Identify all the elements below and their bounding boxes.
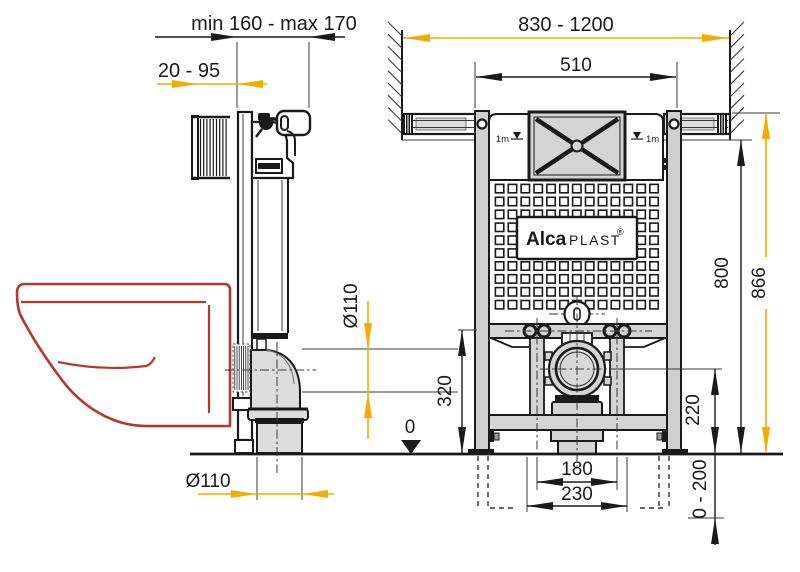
grid-square	[650, 288, 658, 296]
dim-outlet-diameter-label: Ø110	[185, 471, 230, 492]
floor-datum-triangle-icon	[401, 440, 421, 454]
brand-logo-registered: ®	[617, 227, 624, 237]
grid-square	[637, 249, 645, 257]
flush-button	[281, 116, 288, 130]
grid-square	[637, 275, 645, 283]
cistern-top-panel-left	[489, 114, 529, 180]
bottom-crossbar	[489, 415, 667, 430]
grid-square	[624, 262, 632, 270]
grid-square	[508, 197, 516, 205]
grid-square	[495, 210, 503, 218]
dim-frame-width-label: 510	[560, 55, 592, 76]
grid-square	[624, 301, 632, 309]
wall-hatch-stroke	[388, 95, 402, 109]
grid-square	[573, 197, 581, 205]
wall-left	[388, 22, 402, 140]
grid-square	[521, 301, 529, 309]
post-right-bolt-hole	[670, 120, 679, 129]
grid-square	[534, 262, 542, 270]
wall-right-hatching	[730, 22, 744, 134]
grid-square	[508, 262, 516, 270]
wall-hatch-stroke	[388, 120, 402, 134]
level-mark-left-label: 1m	[496, 134, 509, 145]
grid-square	[547, 275, 555, 283]
side-view	[17, 111, 316, 473]
grid-square	[547, 262, 555, 270]
grid-square	[495, 236, 503, 244]
dim-bolt-spacing-arrow-right	[591, 478, 617, 486]
cistern-top-panel-right	[625, 114, 663, 180]
post-left-bolt-hole	[478, 120, 487, 129]
grid-square	[637, 288, 645, 296]
leg-adjuster-right	[662, 431, 667, 442]
dim-leg-adjust-label: 0 - 200	[690, 459, 711, 518]
grid-square	[495, 262, 503, 270]
leg-adjuster-left	[489, 431, 494, 442]
grid-square	[637, 184, 645, 192]
dim-outlet-offset-label: 230	[561, 484, 593, 505]
outlet-socket	[257, 423, 302, 453]
wall-hatch-stroke	[730, 107, 744, 121]
brand-logo-plast: PLAST	[569, 232, 621, 248]
grid-square	[508, 223, 516, 231]
dim-inlet-arrow-top	[458, 330, 466, 356]
cistern-valve-bar	[258, 163, 280, 169]
grid-square	[585, 197, 593, 205]
grid-square	[534, 197, 542, 205]
dim-inlet-height-label: 320	[435, 375, 456, 407]
grid-square	[508, 301, 516, 309]
grid-square	[585, 288, 593, 296]
toilet-bowl-body	[17, 284, 230, 426]
grid-square	[547, 197, 555, 205]
wall-hatch-stroke	[730, 83, 744, 97]
wall-left-hatching	[388, 22, 402, 134]
dim-frame-height-arrow-bottom	[737, 427, 745, 453]
grid-square	[611, 288, 619, 296]
actuator-knob	[259, 116, 273, 130]
dim-outlet-arrow-left	[231, 490, 257, 498]
grid-square	[637, 210, 645, 218]
grid-square	[624, 184, 632, 192]
dim-install-width: 830 - 1200	[403, 14, 729, 42]
grid-square	[637, 301, 645, 309]
dim-pipe-diameter-label: Ø110	[341, 283, 362, 328]
wall-hatch-stroke	[388, 107, 402, 121]
grid-square	[560, 197, 568, 205]
ribs-end-cap	[192, 116, 198, 179]
grid-square	[637, 223, 645, 231]
grid-square	[585, 262, 593, 270]
grid-square	[534, 301, 542, 309]
cistern-bottom-band	[252, 333, 288, 339]
grid-square	[495, 275, 503, 283]
wall-hatch-stroke	[388, 22, 402, 36]
installation-diagram: 1m 1m Alca PLAST ®	[0, 0, 800, 572]
dim-frame-height: 800	[712, 140, 745, 453]
grid-square	[495, 288, 503, 296]
grid-square	[573, 275, 581, 283]
drain-elbow	[251, 350, 300, 409]
grid-square	[534, 275, 542, 283]
dim-total-height-arrow-top	[762, 113, 770, 139]
grid-square	[508, 210, 516, 218]
wall-hatch-stroke	[730, 95, 744, 109]
grid-square	[624, 197, 632, 205]
wall-right	[730, 22, 744, 140]
wall-hatch-stroke	[388, 59, 402, 73]
grid-square	[560, 288, 568, 296]
grid-square	[573, 262, 581, 270]
support-rail-left	[403, 114, 476, 134]
rail-left-slider	[416, 118, 466, 130]
wall-hatch-stroke	[388, 34, 402, 48]
wall-hatch-stroke	[730, 34, 744, 48]
frame-post-right	[667, 111, 681, 453]
dim-outlet-offset-arrow-right	[601, 502, 627, 510]
grid-square	[650, 262, 658, 270]
dim-frame-width-arrow-left	[476, 73, 502, 81]
grid-square	[534, 184, 542, 192]
toilet-bowl-outline	[17, 284, 230, 426]
dim-total-height-label: 866	[749, 267, 770, 299]
grid-square	[650, 301, 658, 309]
grid-square	[508, 249, 516, 257]
grid-square	[573, 288, 581, 296]
grid-square	[650, 236, 658, 244]
bar-wing-right	[624, 338, 665, 347]
wall-hatch-stroke	[730, 22, 744, 36]
dim-total-height: 866	[749, 113, 775, 453]
grid-square	[611, 197, 619, 205]
grid-square	[547, 301, 555, 309]
grid-square	[650, 210, 658, 218]
grid-square	[547, 288, 555, 296]
dim-frame-width-arrow-right	[650, 73, 676, 81]
wall-hatch-stroke	[388, 83, 402, 97]
wall-hatch-stroke	[388, 71, 402, 85]
floor-datum-marker: 0	[401, 417, 421, 454]
leg-adjuster-left-bolt	[494, 433, 499, 440]
grid-square	[521, 288, 529, 296]
grid-square	[521, 197, 529, 205]
grid-square	[495, 249, 503, 257]
grid-square	[650, 223, 658, 231]
grid-square	[560, 262, 568, 270]
dim-leg-adjust-arrow	[711, 518, 719, 544]
cistern-side-body	[252, 122, 293, 350]
grid-square	[547, 184, 555, 192]
grid-square	[495, 197, 503, 205]
grid-square	[637, 197, 645, 205]
grid-square	[521, 184, 529, 192]
dim-install-width-label: 830 - 1200	[518, 14, 614, 36]
dim-wall-distance: 20 - 95	[157, 60, 267, 88]
grid-square	[624, 288, 632, 296]
grid-square	[650, 249, 658, 257]
grid-square	[598, 262, 606, 270]
grid-square	[495, 184, 503, 192]
grid-square	[637, 236, 645, 244]
dim-inlet-arrow-bottom	[458, 427, 466, 453]
wall-hatch-stroke	[388, 46, 402, 60]
grid-square	[585, 275, 593, 283]
bar-wing-left	[491, 338, 530, 347]
frame-post-left	[475, 111, 489, 453]
grid-square	[650, 184, 658, 192]
dim-outlet-height-arrow-top	[711, 369, 719, 395]
wall-hatch-stroke	[730, 71, 744, 85]
grid-square	[573, 184, 581, 192]
grid-square	[598, 184, 606, 192]
grid-square	[598, 275, 606, 283]
grid-square	[508, 275, 516, 283]
grid-square	[495, 223, 503, 231]
dim-outlet-diameter: Ø110	[185, 457, 334, 500]
drain-ear-3	[604, 352, 611, 360]
floor-datum-label: 0	[405, 417, 416, 438]
grid-square	[624, 275, 632, 283]
frame-plate-foot	[235, 440, 253, 453]
grid-square	[637, 262, 645, 270]
grid-square	[611, 275, 619, 283]
dim-outlet-height-label: 220	[683, 394, 704, 426]
dim-pipe-arrow-top	[364, 323, 372, 349]
dim-pipe-diameter: Ø110	[302, 283, 458, 439]
dim-outlet-height-arrow-bottom	[711, 427, 719, 453]
grid-square	[508, 288, 516, 296]
grid-square	[521, 262, 529, 270]
brand-logo-alca: Alca	[526, 229, 567, 250]
cistern-ribs	[201, 119, 227, 176]
wall-hatch-stroke	[730, 46, 744, 60]
dim-bolt-spacing-label: 180	[561, 459, 593, 480]
dim-bolt-spacing-arrow-left	[537, 478, 563, 486]
dim-pipe-arrow-bottom	[364, 392, 372, 418]
technical-drawing-canvas: 1m 1m Alca PLAST ®	[0, 0, 800, 572]
grid-square	[508, 236, 516, 244]
dim-install-width-arrow-left	[404, 34, 430, 42]
dim-frame-height-label: 800	[712, 257, 733, 289]
grid-square	[560, 275, 568, 283]
grid-square	[534, 288, 542, 296]
wall-hatch-stroke	[730, 59, 744, 73]
wall-hatch-stroke	[730, 120, 744, 134]
grid-square	[650, 275, 658, 283]
grid-square	[598, 197, 606, 205]
dim-frame-height-arrow-top	[737, 140, 745, 166]
grid-square	[508, 184, 516, 192]
leg-adjuster-right-bolt	[657, 433, 662, 440]
inspection-center-hole	[572, 141, 583, 152]
frame-bottom	[468, 415, 688, 455]
grid-square	[611, 262, 619, 270]
dim-leg-adjust: 0 - 200	[688, 453, 724, 545]
dim-depth-range-label: min 160 - max 170	[191, 13, 357, 35]
toilet-seat-line	[58, 357, 155, 368]
level-mark-right-label: 1m	[646, 134, 659, 145]
grid-square	[611, 301, 619, 309]
flush-pipe-stub	[257, 339, 266, 350]
grid-square	[495, 301, 503, 309]
dim-wall-distance-label: 20 - 95	[158, 60, 220, 82]
grid-square	[598, 301, 606, 309]
grid-square	[650, 197, 658, 205]
protection-grid-plate: Alca PLAST ®	[495, 184, 658, 309]
grid-square	[598, 288, 606, 296]
dim-outlet-arrow-right	[302, 490, 328, 498]
dim-total-height-arrow-bottom	[762, 427, 770, 453]
coupling-threads	[235, 346, 248, 390]
dim-outlet-offset-arrow-left	[527, 502, 553, 510]
dim-frame-width: 510	[475, 55, 677, 108]
grid-square	[560, 184, 568, 192]
dim-install-width-arrow-right	[702, 34, 728, 42]
grid-square	[611, 184, 619, 192]
cistern-side-ribs-block	[192, 116, 230, 179]
cistern-top: 1m 1m	[489, 112, 663, 180]
dim-wall-distance-arrow-right	[237, 80, 263, 88]
grid-square	[585, 184, 593, 192]
drain-ear-4	[604, 377, 611, 385]
grid-square	[521, 275, 529, 283]
